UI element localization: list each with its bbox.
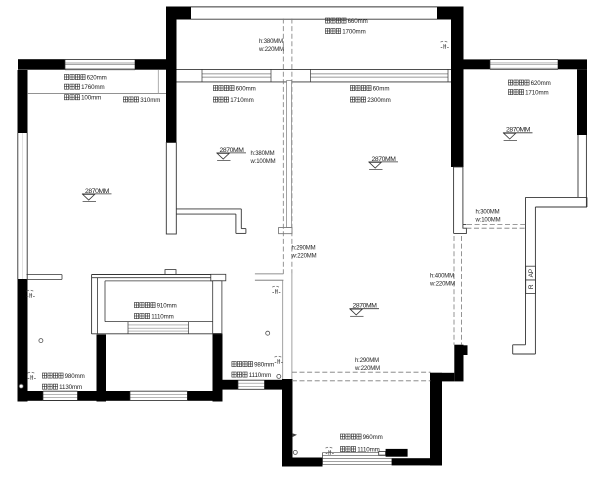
svg-text:AP: AP <box>528 269 535 278</box>
svg-text:w:100MM: w:100MM <box>475 218 501 224</box>
svg-text:660mm: 660mm <box>348 18 368 25</box>
svg-text:1710mm: 1710mm <box>230 97 253 104</box>
svg-text:620mm: 620mm <box>531 80 551 87</box>
svg-text:960mm: 960mm <box>363 434 383 441</box>
svg-text:h:290MM: h:290MM <box>355 358 379 364</box>
svg-text:600mm: 600mm <box>236 85 256 92</box>
svg-text:w:220MM: w:220MM <box>354 366 380 372</box>
svg-text:w:220MM: w:220MM <box>258 47 284 53</box>
svg-text:w:100MM: w:100MM <box>250 159 276 165</box>
svg-text:1710mm: 1710mm <box>525 89 548 96</box>
svg-text:1130mm: 1130mm <box>59 384 82 391</box>
svg-text:w:220MM: w:220MM <box>291 254 317 260</box>
svg-text:h:300MM: h:300MM <box>476 210 500 216</box>
svg-text:h:380MM: h:380MM <box>259 39 283 45</box>
svg-text:910mm: 910mm <box>157 302 177 309</box>
svg-text:310mm: 310mm <box>140 97 160 104</box>
svg-text:1110mm: 1110mm <box>249 372 272 379</box>
svg-text:60mm: 60mm <box>373 85 390 92</box>
svg-text:980mm: 980mm <box>65 373 85 380</box>
svg-text:h:400MM: h:400MM <box>430 274 454 280</box>
svg-text:h:290MM: h:290MM <box>292 246 316 252</box>
svg-text:980mm: 980mm <box>254 361 274 368</box>
svg-text:2300mm: 2300mm <box>367 97 390 104</box>
svg-text:1760mm: 1760mm <box>81 84 104 91</box>
svg-text:h:380MM: h:380MM <box>251 151 275 157</box>
svg-text:100mm: 100mm <box>81 95 101 102</box>
svg-text:1700mm: 1700mm <box>342 28 365 35</box>
svg-text:R: R <box>528 284 535 289</box>
svg-text:1110mm: 1110mm <box>151 313 174 320</box>
svg-text:620mm: 620mm <box>87 74 107 81</box>
svg-text:1110mm: 1110mm <box>357 446 380 453</box>
svg-text:w:220MM: w:220MM <box>429 282 455 288</box>
